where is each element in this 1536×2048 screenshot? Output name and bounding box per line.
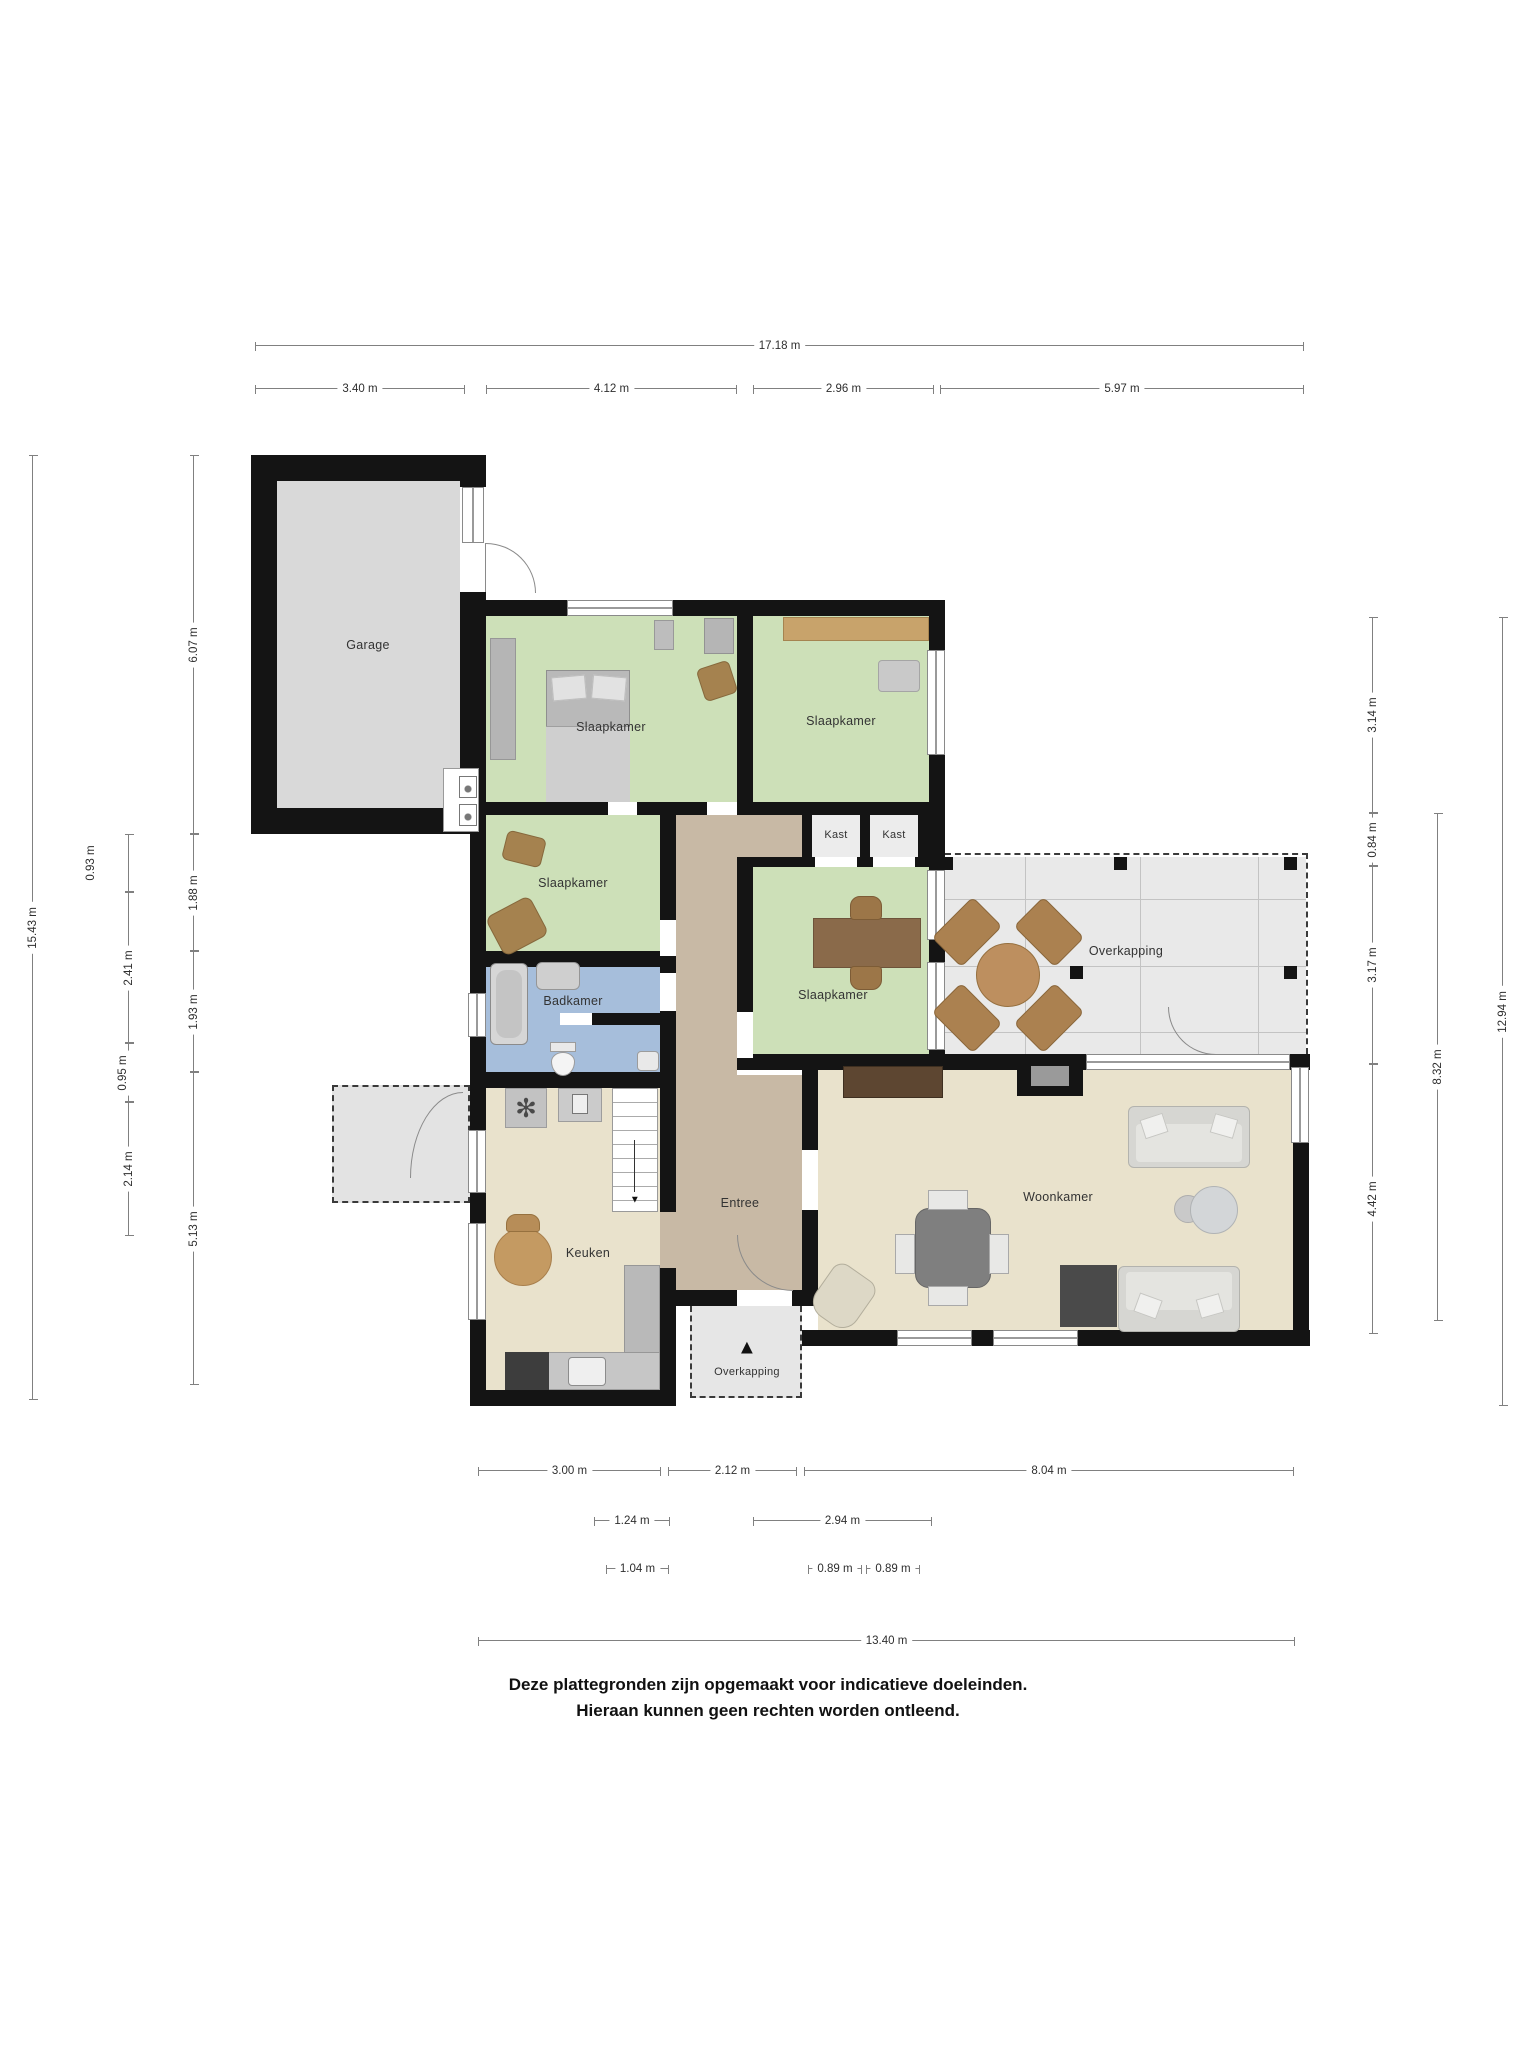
dining-table xyxy=(915,1208,991,1288)
stairs-wall xyxy=(660,1088,676,1212)
dim-left-inner-3: 1.93 m xyxy=(193,951,194,1072)
kitchen-tall-unit xyxy=(624,1265,660,1353)
dim-right-inner-3: 3.17 m xyxy=(1372,866,1373,1064)
desk xyxy=(783,617,929,641)
fireplace-inner xyxy=(1031,1066,1069,1086)
dining-chair xyxy=(989,1234,1009,1274)
staircase xyxy=(612,1088,658,1212)
dim-right-mid: 8.32 m xyxy=(1437,813,1438,1321)
terrace-dashed-edge-right xyxy=(1306,853,1308,1054)
sideboard xyxy=(843,1066,943,1098)
dim-left-inner-1: 6.07 m xyxy=(193,455,194,834)
kitchen-east-wall-lower xyxy=(660,1268,676,1406)
kitchen-counter-hob: ✻ xyxy=(505,1088,547,1128)
desk-chair xyxy=(850,966,882,990)
kitchen-window-1 xyxy=(468,1130,486,1193)
dim-left-mid-1: 0.93 m xyxy=(128,834,129,892)
door-gap-bedroom1 xyxy=(707,802,737,815)
terrace-post xyxy=(1284,857,1297,870)
tv-cabinet xyxy=(1060,1265,1117,1327)
floor-plan-page: ✻ ▼ ▲ Garage Slaapkamer Slaapkamer Slaap… xyxy=(0,0,1536,2048)
wardrobe xyxy=(490,638,516,760)
dim-right-inner-2: 0.84 m xyxy=(1372,813,1373,866)
bathtub-inner xyxy=(496,970,522,1038)
door-gap-closet2 xyxy=(873,857,915,867)
disclaimer-line-2: Hieraan kunnen geen rechten worden ontle… xyxy=(0,1698,1536,1724)
dim-left-mid-3: 0.95 m xyxy=(128,1043,129,1102)
room-label-overkapping: Overkapping xyxy=(1089,944,1163,958)
door-gap-bathroom xyxy=(660,973,676,1011)
stairs-direction-line xyxy=(634,1140,635,1192)
living-window-south-2 xyxy=(993,1330,1078,1346)
kitchen-sink xyxy=(568,1357,606,1386)
room-label-slaapkamer-1: Slaapkamer xyxy=(576,720,646,734)
door-gap-front-door xyxy=(737,1290,792,1306)
entrance-marker-icon: ▲ xyxy=(737,1337,757,1360)
dim-bottom-1c: 8.04 m xyxy=(804,1470,1294,1471)
door-gap-bedroom4 xyxy=(737,1012,753,1058)
dining-chair xyxy=(928,1190,968,1210)
dim-left-mid-2: 2.41 m xyxy=(128,892,129,1043)
dim-top-1: 3.40 m xyxy=(255,388,465,389)
bed-pillow xyxy=(591,675,627,702)
dim-bottom-2a: 1.24 m xyxy=(594,1520,670,1521)
dim-left-mid-4: 2.14 m xyxy=(128,1102,129,1236)
oven xyxy=(505,1352,549,1390)
dim-bottom-1a: 3.00 m xyxy=(478,1470,661,1471)
dim-right-inner-4: 4.42 m xyxy=(1372,1064,1373,1334)
bathroom-wall-south xyxy=(470,1072,676,1088)
dim-bottom-3a: 1.04 m xyxy=(606,1568,669,1569)
kitchen-table xyxy=(494,1228,552,1286)
dim-left-inner-2: 1.88 m xyxy=(193,834,194,951)
garage-window xyxy=(462,487,484,543)
dim-bottom-total: 13.40 m xyxy=(478,1640,1295,1641)
room-label-entree: Entree xyxy=(721,1196,760,1210)
terrace-grid-line xyxy=(945,899,1306,900)
dim-right-total: 12.94 m xyxy=(1502,617,1503,1406)
hall-floor-upper xyxy=(676,812,737,1075)
garage-wall-left xyxy=(251,455,277,834)
cabinet xyxy=(704,618,734,654)
room-label-badkamer: Badkamer xyxy=(543,994,602,1008)
terrace-grid-line xyxy=(1258,857,1259,1054)
bed-pillow xyxy=(551,675,587,702)
room-label-slaapkamer-2: Slaapkamer xyxy=(806,714,876,728)
disclaimer: Deze plattegronden zijn opgemaakt voor i… xyxy=(0,1672,1536,1725)
bed-blanket xyxy=(546,726,630,802)
bathroom-sink xyxy=(536,962,580,990)
wall-bedroom1-bedroom2 xyxy=(737,616,753,815)
room-label-slaapkamer-3: Slaapkamer xyxy=(538,876,608,890)
door-gap-wc xyxy=(560,1013,592,1025)
terrace-post xyxy=(1114,857,1127,870)
living-window-north xyxy=(1086,1054,1290,1070)
living-window-south-1 xyxy=(897,1330,972,1346)
closet-wall-left xyxy=(802,812,812,857)
dim-bottom-2b: 2.94 m xyxy=(753,1520,932,1521)
door-gap-bedroom3 xyxy=(660,920,676,956)
kitchen-wall-bottom xyxy=(470,1390,676,1406)
dim-top-4: 5.97 m xyxy=(940,388,1304,389)
bedroom2-window xyxy=(927,650,945,755)
house-wall-top xyxy=(470,600,945,616)
coffee-table-large xyxy=(1190,1186,1238,1234)
room-label-woonkamer: Woonkamer xyxy=(1023,1190,1093,1204)
room-label-keuken: Keuken xyxy=(566,1246,610,1260)
door-gap-living xyxy=(802,1150,818,1210)
washer-icon xyxy=(459,776,477,798)
desk xyxy=(813,918,921,968)
bathroom-wc-divider xyxy=(592,1013,660,1025)
terrace-grid-line xyxy=(945,1032,1306,1033)
terrace-post xyxy=(1284,966,1297,979)
dim-top-total: 17.18 m xyxy=(255,345,1304,346)
garage-wall-top xyxy=(251,455,486,481)
hall-kitchen-passage xyxy=(660,1212,676,1268)
hob-icon: ✻ xyxy=(515,1093,537,1123)
garage-door-leaf xyxy=(485,543,486,592)
stairs-down-arrow-icon: ▼ xyxy=(630,1195,640,1206)
dim-right-inner-1: 3.14 m xyxy=(1372,617,1373,813)
disclaimer-line-1: Deze plattegronden zijn opgemaakt voor i… xyxy=(0,1672,1536,1698)
dim-left-total: 15.43 m xyxy=(32,455,33,1400)
dim-bottom-3b: 0.89 m xyxy=(808,1568,862,1569)
room-label-overkapping-entree: Overkapping xyxy=(714,1366,780,1378)
dryer-icon xyxy=(459,804,477,826)
desk-chair xyxy=(850,896,882,920)
coffee-machine-icon xyxy=(572,1094,588,1114)
terrace-dashed-edge-top xyxy=(945,853,1308,855)
terrace-table xyxy=(976,943,1040,1007)
nightstand xyxy=(654,620,674,650)
room-label-slaapkamer-4: Slaapkamer xyxy=(798,988,868,1002)
bedroom-2-floor xyxy=(753,616,929,802)
room-label-kast-1: Kast xyxy=(824,829,847,841)
hall-floor-strip xyxy=(737,812,802,857)
door-gap-bedroom3-north xyxy=(608,802,637,815)
bedroom1-window xyxy=(567,600,673,616)
dining-chair xyxy=(928,1286,968,1306)
room-label-kast-2: Kast xyxy=(882,829,905,841)
dining-chair xyxy=(895,1234,915,1274)
kitchen-chair xyxy=(506,1214,540,1232)
kitchen-window-2 xyxy=(468,1223,486,1320)
dim-left-inner-4: 5.13 m xyxy=(193,1072,194,1385)
door-gap-closet1 xyxy=(815,857,857,867)
dim-bottom-3c: 0.89 m xyxy=(866,1568,920,1569)
bathroom-window xyxy=(468,993,486,1037)
terrace-post xyxy=(1070,966,1083,979)
toilet-tank xyxy=(550,1042,576,1052)
dim-top-3: 2.96 m xyxy=(753,388,934,389)
living-window-east xyxy=(1291,1067,1309,1143)
garage-wall-right-upper xyxy=(460,455,486,487)
garage-door-arc xyxy=(486,543,536,593)
room-label-garage: Garage xyxy=(346,638,390,652)
dim-top-2: 4.12 m xyxy=(486,388,737,389)
dim-bottom-1b: 2.12 m xyxy=(668,1470,797,1471)
corner-sink xyxy=(637,1051,659,1071)
desk-chair xyxy=(878,660,920,692)
closet-wall-mid xyxy=(860,812,870,857)
